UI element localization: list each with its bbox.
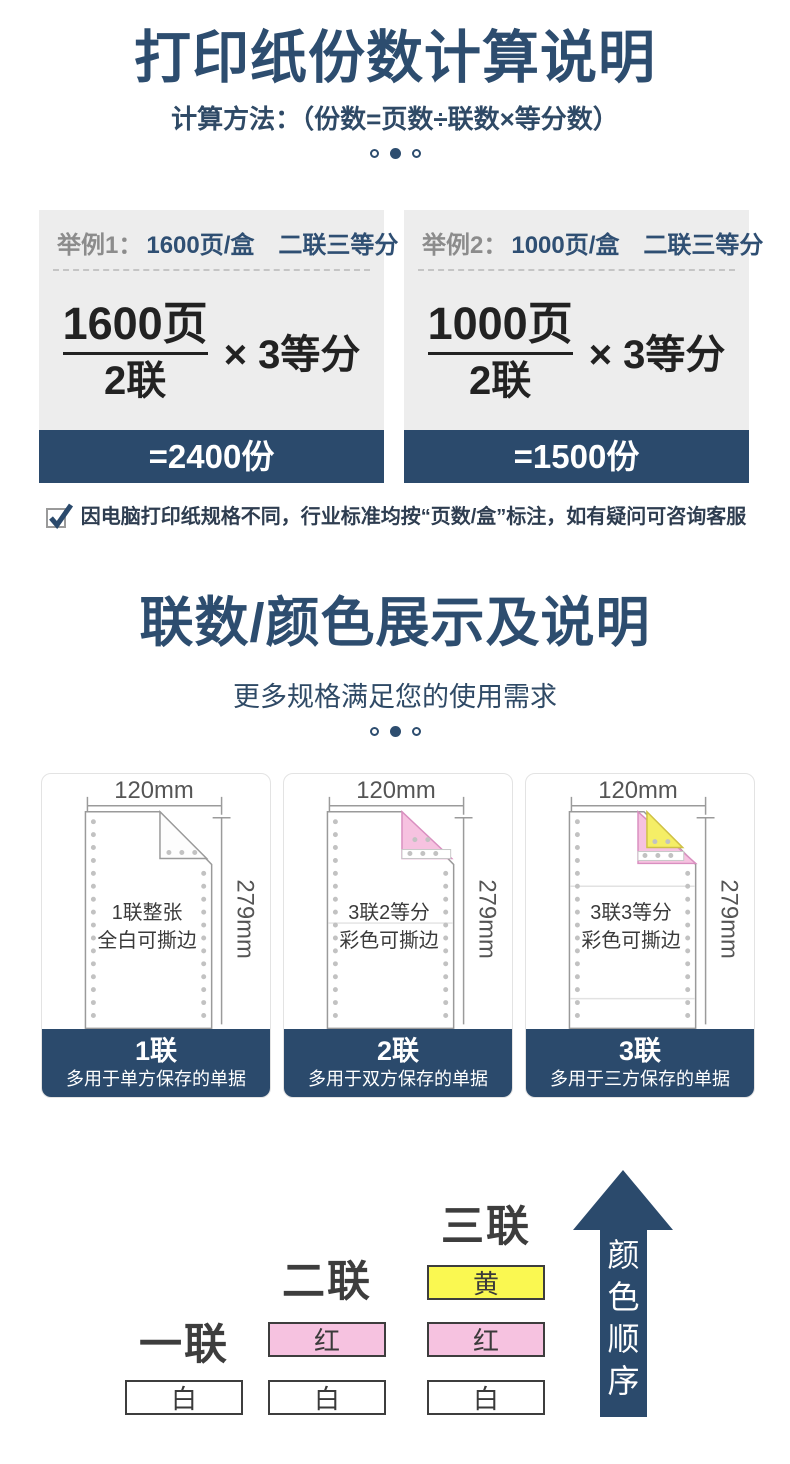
color-box-yellow: 黄 [427, 1265, 545, 1300]
example-box-2: 举例2：1000页/盒 二联三等分 1000页 2联 × 3等分 =1500份 [404, 210, 749, 483]
calculation-method-subtitle: 计算方法：（份数=页数÷联数×等分数） [0, 99, 790, 136]
result-bar: =2400份 [39, 430, 384, 483]
examples-row: 举例1：1600页/盒 二联三等分 1600页 2联 × 3等分 =2400份 … [39, 210, 749, 483]
example-spec: 1000页/盒 二联三等分 [511, 232, 763, 259]
dot-icon-active [390, 726, 401, 737]
multiplier: × 3等分 [224, 322, 361, 380]
paper-desc-line2: 全白可撕边 [97, 930, 196, 952]
color-box-white: 白 [268, 1380, 386, 1415]
color-box-white: 白 [427, 1380, 545, 1415]
column-label-2ply: 二联 [268, 1259, 386, 1305]
paper-desc-line2: 彩色可撕边 [339, 930, 438, 952]
paper-desc-line2: 彩色可撕边 [581, 930, 680, 952]
ply-usage: 多用于三方保存的单据 [526, 1067, 754, 1091]
dot-icon [370, 727, 379, 736]
fraction-bar [63, 352, 208, 355]
color-box-red: 红 [427, 1322, 545, 1357]
height-dim-label: 279mm [473, 879, 500, 958]
color-box-white: 白 [125, 1380, 243, 1415]
note-row: 因电脑打印纸规格不同，行业标准均按“页数/盒”标注，如有疑问可咨询客服 [0, 500, 790, 529]
section2-subtitle: 更多规格满足您的使用需求 [0, 675, 790, 714]
paper-desc-line1: 3联2等分 [348, 902, 430, 924]
fraction: 1000页 2联 [428, 298, 573, 404]
example-header: 举例1：1600页/盒 二联三等分 [39, 210, 384, 260]
spec-card-3ply: 120mm 279mm 3联3等分 彩色可撕边 [525, 773, 755, 1098]
width-dim-label: 120mm [598, 777, 677, 804]
result-bar: =1500份 [404, 430, 749, 483]
spec-card-2ply: 120mm 279mm 3联2等分 彩色可撕边 2联 多用 [283, 773, 513, 1098]
ply-count: 2联 [284, 1035, 512, 1067]
page-title: 打印纸份数计算说明 [0, 12, 790, 94]
color-box-red: 红 [268, 1322, 386, 1357]
card-footer: 1联 多用于单方保存的单据 [42, 1029, 270, 1097]
print-paper-infographic: 打印纸份数计算说明 计算方法：（份数=页数÷联数×等分数） 举例1：1600页/… [0, 0, 790, 1464]
ply-usage: 多用于双方保存的单据 [284, 1067, 512, 1091]
ply-count: 3联 [526, 1035, 754, 1067]
dot-icon [370, 149, 379, 158]
formula: 1600页 2联 × 3等分 [39, 271, 384, 430]
spec-cards-row: 120mm 279mm 1联整张 全白可撕边 1联 多用于单方保存的单据 [41, 773, 755, 1098]
column-label-3ply: 三联 [427, 1204, 545, 1250]
paper-diagram-1ply: 120mm 279mm 1联整张 全白可撕边 [42, 774, 270, 1029]
example-label: 举例2： [422, 232, 507, 259]
paper-diagram-2ply: 120mm 279mm 3联2等分 彩色可撕边 [284, 774, 512, 1029]
multiplier: × 3等分 [589, 322, 726, 380]
card-footer: 2联 多用于双方保存的单据 [284, 1029, 512, 1097]
note-text: 因电脑打印纸规格不同，行业标准均按“页数/盒”标注，如有疑问可咨询客服 [81, 500, 747, 529]
spec-card-1ply: 120mm 279mm 1联整张 全白可撕边 1联 多用于单方保存的单据 [41, 773, 271, 1098]
fraction-denominator: 2联 [469, 359, 531, 403]
fraction: 1600页 2联 [63, 298, 208, 404]
height-dim-label: 279mm [231, 879, 258, 958]
fraction-numerator: 1600页 [63, 298, 208, 350]
column-label-1ply: 一联 [125, 1322, 243, 1368]
carousel-dots [0, 148, 790, 159]
fraction-denominator: 2联 [104, 359, 166, 403]
formula: 1000页 2联 × 3等分 [404, 271, 749, 430]
checkbox-checked-icon [44, 501, 74, 529]
card-footer: 3联 多用于三方保存的单据 [526, 1029, 754, 1097]
fraction-bar [428, 352, 573, 355]
example-label: 举例1： [57, 232, 142, 259]
paper-desc-line1: 1联整张 [112, 902, 183, 924]
ply-usage: 多用于单方保存的单据 [42, 1067, 270, 1091]
example-box-1: 举例1：1600页/盒 二联三等分 1600页 2联 × 3等分 =2400份 [39, 210, 384, 483]
example-header: 举例2：1000页/盒 二联三等分 [404, 210, 749, 260]
arrow-label: 颜色顺序 [600, 1234, 647, 1402]
color-order-diagram: 一联 二联 三联 黄 红 红 白 白 白 颜色顺序 [0, 1160, 790, 1430]
fraction-numerator: 1000页 [428, 298, 573, 350]
width-dim-label: 120mm [114, 777, 193, 804]
section2-title: 联数/颜色展示及说明 [0, 578, 790, 657]
folded-corner-yellow [647, 812, 683, 848]
ply-count: 1联 [42, 1035, 270, 1067]
width-dim-label: 120mm [356, 777, 435, 804]
dot-icon [412, 149, 421, 158]
dot-icon [412, 727, 421, 736]
paper-diagram-3ply: 120mm 279mm 3联3等分 彩色可撕边 [526, 774, 754, 1029]
height-dim-label: 279mm [715, 879, 742, 958]
carousel-dots [0, 726, 790, 737]
example-spec: 1600页/盒 二联三等分 [146, 232, 398, 259]
paper-desc-line1: 3联3等分 [590, 902, 672, 924]
dot-icon-active [390, 148, 401, 159]
